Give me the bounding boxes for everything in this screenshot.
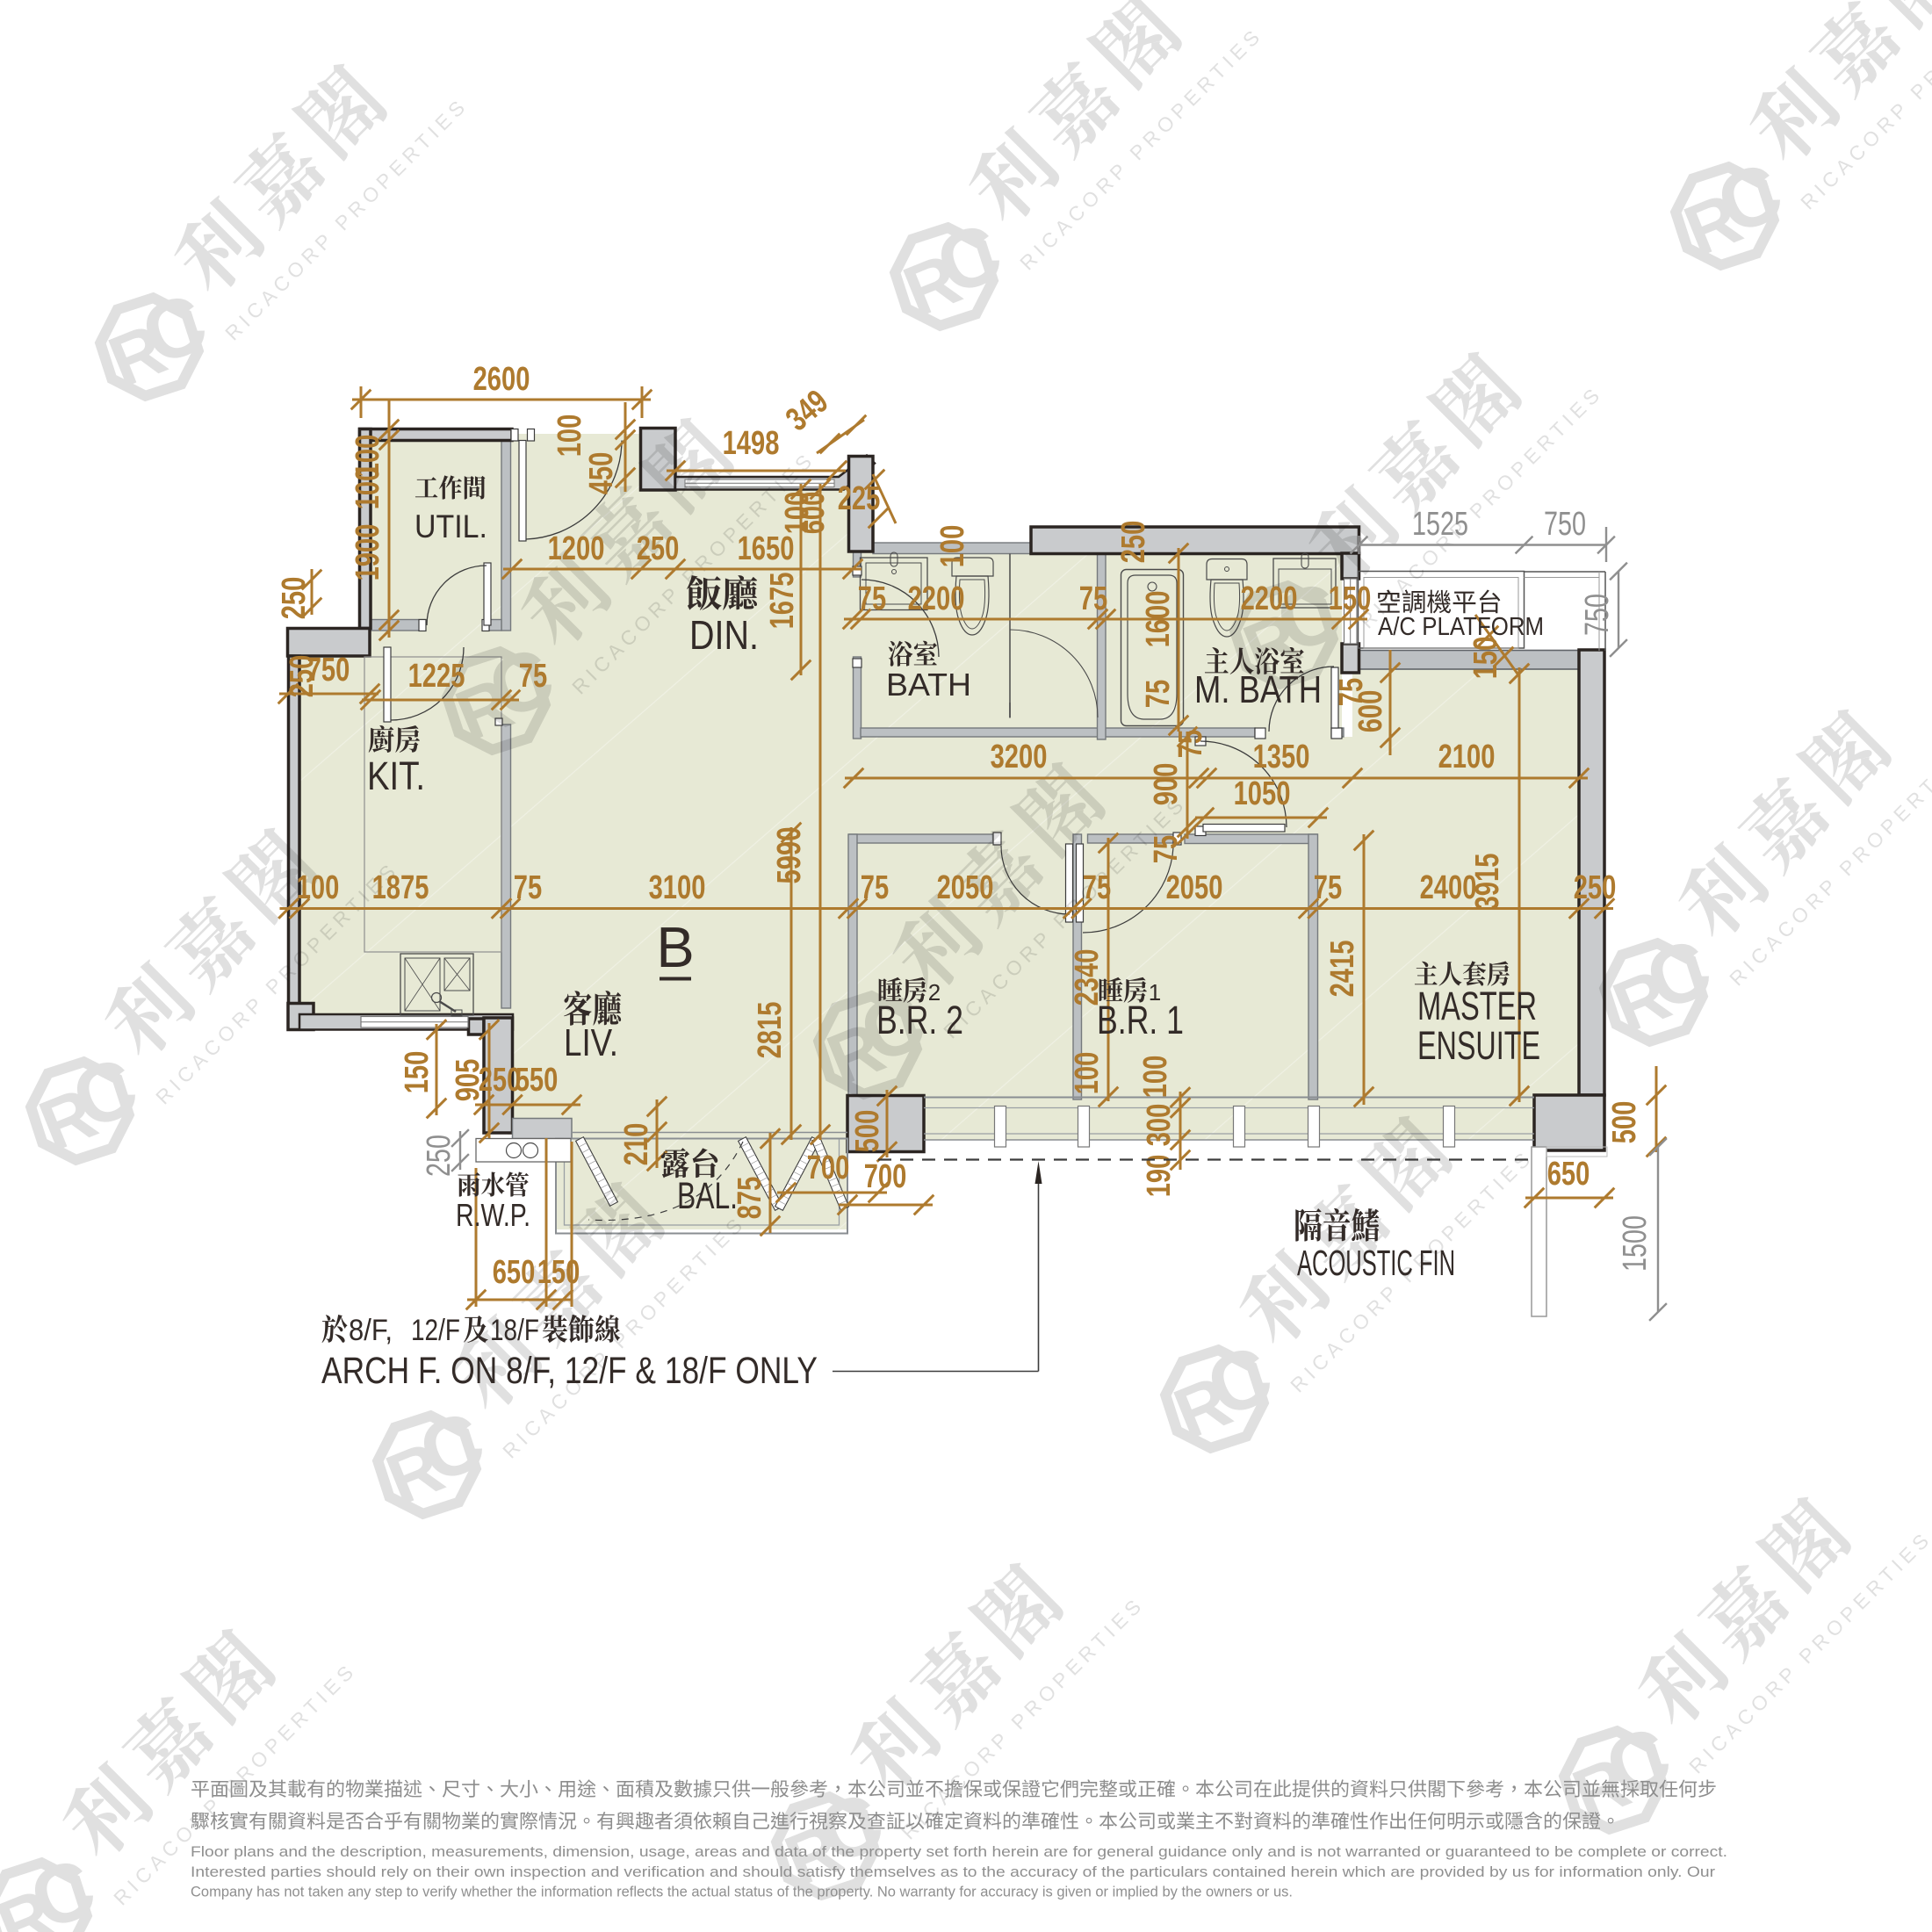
svg-text:75: 75 (1079, 580, 1107, 617)
svg-text:550: 550 (515, 1062, 559, 1099)
svg-text:BAL.: BAL. (677, 1176, 738, 1217)
svg-text:BATH: BATH (886, 667, 971, 703)
svg-text:700: 700 (864, 1158, 907, 1195)
svg-text:190: 190 (1141, 1155, 1178, 1198)
svg-text:900: 900 (1148, 763, 1185, 806)
svg-text:75: 75 (861, 869, 889, 906)
svg-text:LIV.: LIV. (564, 1021, 618, 1064)
svg-text:B: B (656, 915, 694, 979)
svg-text:75: 75 (519, 658, 547, 695)
svg-text:100: 100 (551, 415, 588, 458)
svg-text:500: 500 (1606, 1101, 1643, 1144)
svg-text:MASTER: MASTER (1417, 984, 1537, 1028)
svg-text:150: 150 (399, 1051, 436, 1094)
svg-text:150: 150 (1467, 637, 1504, 680)
svg-text:ACOUSTIC FIN: ACOUSTIC FIN (1297, 1243, 1455, 1283)
svg-text:100: 100 (934, 525, 971, 568)
svg-text:B.R. 2: B.R. 2 (876, 998, 963, 1042)
svg-text:1200: 1200 (548, 530, 605, 567)
svg-text:600: 600 (1352, 690, 1389, 733)
svg-text:2600: 2600 (473, 361, 530, 398)
svg-text:450: 450 (583, 452, 620, 495)
svg-text:750: 750 (1544, 506, 1586, 543)
svg-text:2200: 2200 (1241, 580, 1298, 617)
svg-text:100: 100 (1137, 1056, 1174, 1099)
svg-text:A/C PLATFORM: A/C PLATFORM (1378, 613, 1544, 641)
svg-text:2200: 2200 (908, 580, 965, 617)
svg-text:3915: 3915 (1469, 854, 1506, 911)
svg-text:Interested parties should rely: Interested parties should rely on their … (191, 1864, 1715, 1880)
svg-text:700: 700 (807, 1150, 850, 1186)
svg-text:1350: 1350 (1253, 739, 1310, 775)
svg-text:225: 225 (838, 480, 881, 517)
svg-text:2415: 2415 (1324, 941, 1361, 998)
svg-text:1900: 1900 (350, 524, 386, 581)
svg-text:ARCH F. ON 8/F, 12/F & 18/F ON: ARCH F. ON 8/F, 12/F & 18/F ONLY (321, 1350, 818, 1392)
svg-text:1650: 1650 (738, 530, 795, 567)
svg-text:2400: 2400 (1420, 869, 1477, 906)
svg-text:650: 650 (1547, 1156, 1590, 1193)
svg-text:1500: 1500 (1617, 1215, 1654, 1272)
svg-text:1525: 1525 (1412, 506, 1468, 543)
svg-text:100: 100 (350, 467, 386, 510)
svg-text:300: 300 (1141, 1104, 1178, 1147)
svg-text:1675: 1675 (764, 573, 801, 630)
svg-text:250: 250 (1115, 521, 1152, 564)
svg-text:M. BATH: M. BATH (1194, 668, 1322, 711)
svg-text:2815: 2815 (752, 1002, 789, 1059)
svg-text:3100: 3100 (649, 869, 706, 906)
svg-text:18/F: 18/F (490, 1314, 539, 1347)
svg-text:75: 75 (514, 869, 542, 906)
svg-text:1875: 1875 (372, 869, 429, 906)
svg-text:75: 75 (1140, 680, 1177, 708)
svg-text:75: 75 (1148, 835, 1185, 863)
svg-text:150: 150 (537, 1254, 580, 1291)
svg-text:75: 75 (1314, 869, 1342, 906)
svg-text:8/F,: 8/F, (349, 1314, 393, 1347)
svg-text:750: 750 (1579, 594, 1616, 636)
svg-text:500: 500 (849, 1110, 886, 1153)
svg-text:UTIL.: UTIL. (415, 508, 487, 544)
svg-text:3200: 3200 (991, 739, 1048, 775)
svg-text:250: 250 (421, 1135, 458, 1177)
svg-text:B.R. 1: B.R. 1 (1097, 998, 1184, 1042)
svg-text:2100: 2100 (1438, 739, 1496, 775)
svg-text:150: 150 (1329, 580, 1372, 617)
svg-text:Floor plans and the descriptio: Floor plans and the description, measure… (191, 1843, 1727, 1860)
svg-text:210: 210 (618, 1123, 655, 1166)
svg-text:100: 100 (1069, 1052, 1106, 1095)
svg-text:75: 75 (858, 580, 886, 617)
svg-text:250: 250 (637, 530, 680, 567)
svg-text:ENSUITE: ENSUITE (1417, 1023, 1540, 1068)
svg-text:100: 100 (297, 869, 340, 906)
svg-text:75: 75 (1083, 869, 1111, 906)
svg-text:12/F: 12/F (411, 1314, 460, 1347)
svg-text:R.W.P.: R.W.P. (456, 1198, 530, 1233)
svg-text:250: 250 (1574, 869, 1617, 906)
svg-text:2050: 2050 (1166, 869, 1223, 906)
svg-text:1050: 1050 (1234, 775, 1291, 812)
svg-text:2050: 2050 (937, 869, 994, 906)
svg-text:1600: 1600 (1140, 591, 1177, 648)
svg-text:650: 650 (493, 1254, 536, 1291)
svg-text:KIT.: KIT. (367, 753, 425, 798)
svg-text:Company has not taken any step: Company has not taken any step to verify… (191, 1884, 1293, 1900)
svg-text:75: 75 (1172, 730, 1209, 758)
svg-text:1225: 1225 (408, 658, 465, 695)
svg-text:1498: 1498 (723, 425, 780, 462)
svg-text:250: 250 (284, 655, 321, 698)
svg-text:DIN.: DIN. (689, 612, 759, 658)
